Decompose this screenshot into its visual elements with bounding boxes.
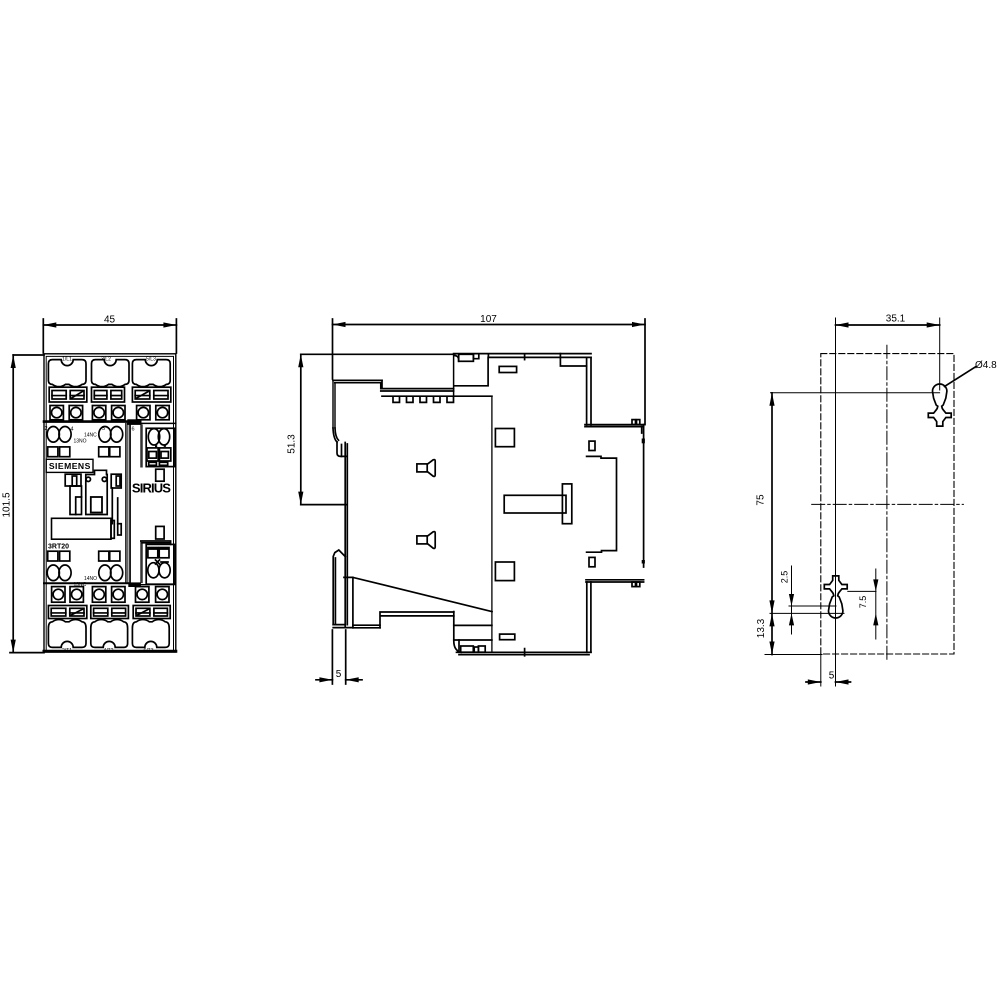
svg-text:3RT20: 3RT20 — [48, 544, 69, 551]
svg-text:5: 5 — [102, 426, 105, 432]
svg-text:7.5: 7.5 — [858, 596, 868, 609]
svg-text:13NO: 13NO — [74, 439, 87, 445]
svg-text:51.3: 51.3 — [287, 434, 298, 454]
svg-text:107: 107 — [480, 314, 497, 325]
svg-text:13.3: 13.3 — [756, 618, 767, 638]
svg-text:2: 2 — [45, 426, 48, 432]
svg-text:2.5: 2.5 — [779, 571, 789, 584]
svg-text:6/T3: 6/T3 — [143, 648, 153, 654]
svg-text:Ø4.8: Ø4.8 — [975, 360, 997, 371]
svg-text:2/T1: 2/T1 — [62, 648, 72, 654]
svg-text:45: 45 — [104, 315, 116, 326]
svg-text:5/L3: 5/L3 — [146, 357, 156, 363]
svg-text:35.1: 35.1 — [886, 314, 906, 325]
svg-text:4: 4 — [71, 427, 74, 433]
svg-text:4/T2: 4/T2 — [103, 648, 113, 654]
svg-text:3/L2: 3/L2 — [101, 357, 111, 363]
svg-text:75: 75 — [756, 494, 767, 506]
svg-text:SIEMENS: SIEMENS — [49, 461, 91, 471]
svg-text:1/L1: 1/L1 — [62, 357, 72, 363]
svg-text:101.5: 101.5 — [2, 492, 13, 517]
svg-text:5: 5 — [829, 671, 835, 682]
svg-text:5: 5 — [336, 669, 342, 680]
svg-text:SIRIUS: SIRIUS — [132, 480, 171, 495]
svg-text:6: 6 — [132, 427, 135, 433]
